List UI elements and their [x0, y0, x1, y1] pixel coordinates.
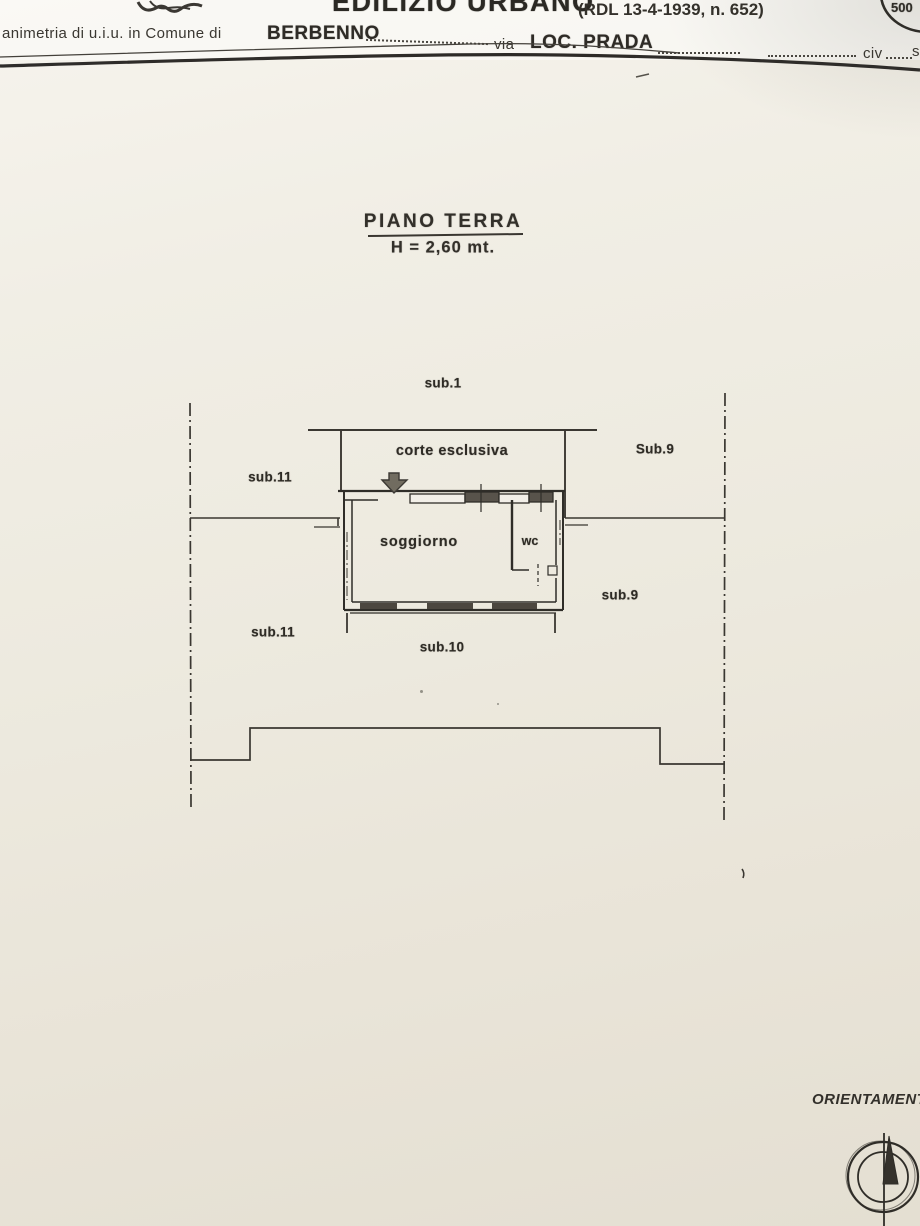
- wall-boundary-overlay: [347, 520, 560, 600]
- label-sub11-lower: sub.11: [251, 625, 295, 640]
- label-wc: wc: [522, 534, 539, 548]
- lower-wall-stubs: [347, 613, 555, 633]
- label-sub9-lower: sub.9: [602, 588, 639, 603]
- building-walls: [338, 491, 565, 613]
- floorplan-drawing: [0, 0, 920, 1226]
- label-sub1: sub.1: [425, 376, 462, 391]
- label-sub9-upper: Sub.9: [636, 442, 674, 457]
- cadastral-floorplan-scan: EDILIZIO URBANO (RDL 13-4-1939, n. 652) …: [0, 0, 920, 1226]
- label-soggiorno: soggiorno: [380, 534, 458, 550]
- label-corte-esclusiva: corte esclusiva: [396, 443, 508, 459]
- label-sub10: sub.10: [420, 640, 465, 655]
- pen-mark: [742, 869, 744, 878]
- window-symbols: [410, 484, 553, 512]
- scan-speck: [420, 690, 423, 693]
- scan-speck: [497, 703, 499, 705]
- label-sub11-upper: sub.11: [248, 470, 292, 485]
- bottom-wall-segments: [360, 603, 537, 609]
- stepped-boundary-line: [190, 728, 725, 764]
- orientation-label: ORIENTAMENTO: [812, 1091, 920, 1108]
- compass-icon: [846, 1133, 918, 1226]
- subdivision-boundary-lines: [190, 518, 725, 527]
